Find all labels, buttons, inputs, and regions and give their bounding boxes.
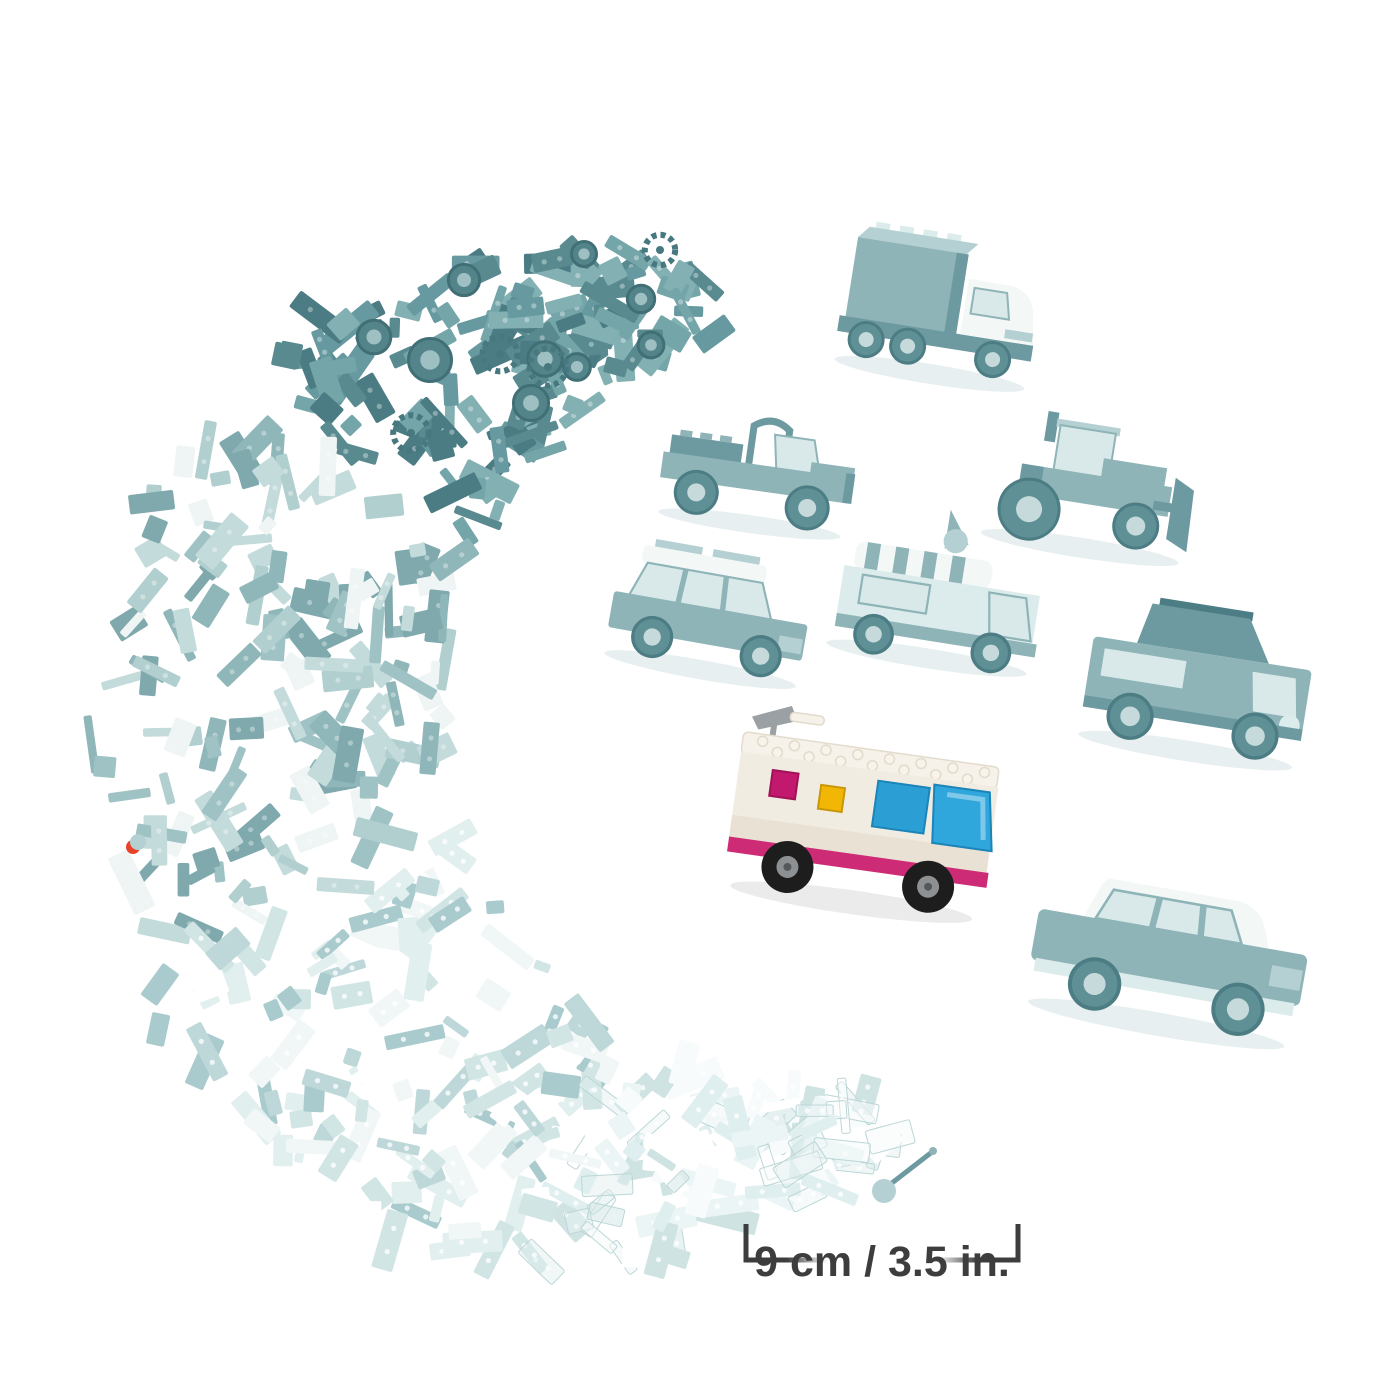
round-stud-piece bbox=[130, 834, 146, 850]
scene-canvas bbox=[0, 0, 1400, 1400]
build-pop-top-camper bbox=[1077, 588, 1320, 778]
build-roof-rack-car bbox=[602, 533, 818, 696]
ice-cream-cone bbox=[939, 508, 970, 555]
size-label: 9 cm / 3.5 in. bbox=[754, 1238, 1010, 1286]
product-image: 9 cm / 3.5 in. bbox=[0, 0, 1400, 1400]
build-off-road-buggy bbox=[654, 407, 861, 547]
side-window-blue bbox=[872, 781, 930, 834]
magenta-window bbox=[769, 770, 798, 799]
roof-wing bbox=[790, 712, 825, 726]
yellow-window bbox=[818, 785, 845, 812]
build-tractor bbox=[979, 404, 1204, 575]
size-annotation: 9 cm / 3.5 in. bbox=[740, 1216, 1024, 1294]
build-cargo-truck bbox=[831, 218, 1048, 399]
build-color-motorhome bbox=[721, 700, 1008, 933]
build-classic-car bbox=[1021, 867, 1315, 1059]
